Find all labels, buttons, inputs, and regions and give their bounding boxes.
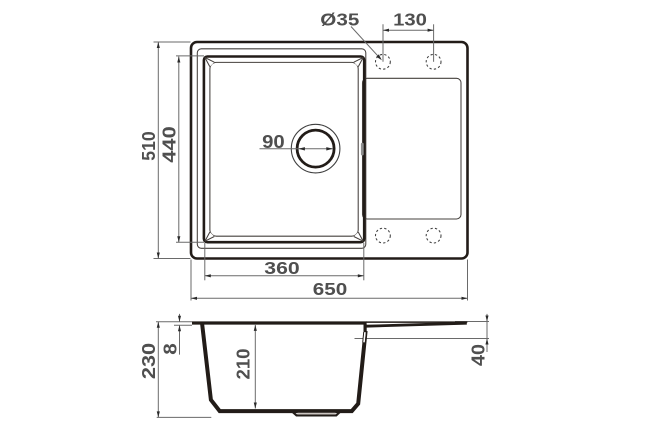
- svg-text:210: 210: [234, 348, 254, 379]
- svg-text:90: 90: [262, 131, 285, 152]
- svg-text:360: 360: [264, 258, 300, 278]
- svg-text:40: 40: [469, 344, 489, 366]
- svg-text:510: 510: [139, 131, 159, 160]
- svg-text:130: 130: [393, 9, 427, 29]
- svg-text:8: 8: [160, 343, 180, 355]
- svg-text:Ø35: Ø35: [320, 10, 359, 30]
- svg-text:230: 230: [139, 343, 159, 379]
- svg-text:440: 440: [159, 126, 179, 163]
- svg-text:650: 650: [313, 279, 348, 299]
